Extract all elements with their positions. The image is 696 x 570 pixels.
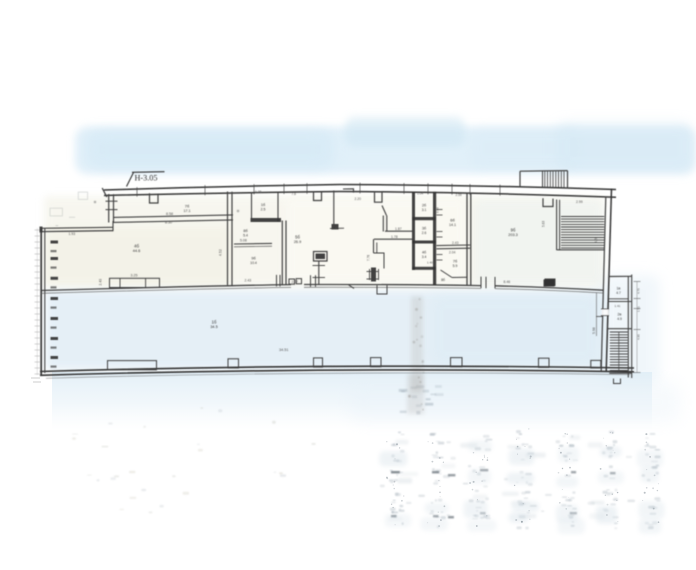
svg-text:8.46: 8.46 <box>504 280 511 284</box>
svg-text:7б: 7б <box>185 204 190 209</box>
svg-text:2в: 2в <box>618 313 622 317</box>
svg-text:203.3: 203.3 <box>508 233 517 237</box>
svg-text:44.6: 44.6 <box>133 248 141 253</box>
svg-text:2.43: 2.43 <box>245 279 252 283</box>
svg-text:1.78: 1.78 <box>391 235 398 239</box>
svg-text:9б: 9б <box>511 228 516 233</box>
svg-text:2б: 2б <box>422 204 426 208</box>
svg-text:1.40: 1.40 <box>427 261 433 265</box>
svg-text:2.20: 2.20 <box>355 197 362 201</box>
svg-text:1.93: 1.93 <box>69 232 76 236</box>
svg-text:2.59: 2.59 <box>456 193 462 197</box>
svg-text:5.98: 5.98 <box>592 327 596 334</box>
svg-text:4.76: 4.76 <box>637 288 641 294</box>
svg-text:7.8: 7.8 <box>292 192 297 196</box>
svg-text:1.41: 1.41 <box>615 304 621 308</box>
svg-text:26.9: 26.9 <box>294 240 301 244</box>
svg-text:8.50: 8.50 <box>165 221 172 225</box>
svg-text:4.7: 4.7 <box>616 291 621 295</box>
svg-text:1.26: 1.26 <box>255 190 262 194</box>
svg-text:2.04: 2.04 <box>449 250 456 254</box>
svg-text:1в: 1в <box>617 287 621 291</box>
svg-text:8.58: 8.58 <box>166 212 173 216</box>
svg-text:17.1: 17.1 <box>184 209 191 213</box>
svg-text:34.5: 34.5 <box>210 325 217 329</box>
svg-text:3.4: 3.4 <box>422 255 427 259</box>
svg-text:10.4: 10.4 <box>250 261 257 265</box>
svg-text:3б: 3б <box>422 227 426 231</box>
svg-text:4.9: 4.9 <box>617 317 622 321</box>
svg-text:2.43: 2.43 <box>99 279 103 286</box>
svg-text:4.52: 4.52 <box>219 249 223 256</box>
svg-text:8б: 8б <box>441 278 445 282</box>
svg-text:5б: 5б <box>295 235 300 240</box>
svg-text:5.9: 5.9 <box>453 264 458 268</box>
svg-text:2.07: 2.07 <box>292 280 299 284</box>
svg-text:1.51: 1.51 <box>637 306 641 312</box>
svg-text:2.6: 2.6 <box>422 231 427 235</box>
svg-text:H-3.05: H-3.05 <box>135 174 158 183</box>
svg-text:1.04: 1.04 <box>417 192 423 196</box>
svg-text:34.51: 34.51 <box>279 348 289 352</box>
svg-text:4.96: 4.96 <box>637 334 641 340</box>
svg-text:1б: 1б <box>212 320 217 325</box>
svg-text:2.99: 2.99 <box>576 200 583 204</box>
svg-text:5.63: 5.63 <box>542 221 546 227</box>
svg-text:3.25: 3.25 <box>131 274 138 278</box>
svg-text:0.88: 0.88 <box>436 207 440 213</box>
svg-text:6б: 6б <box>450 218 455 223</box>
svg-text:2.43: 2.43 <box>452 241 459 245</box>
svg-text:3.1: 3.1 <box>422 208 427 212</box>
svg-text:1.87: 1.87 <box>395 227 402 231</box>
svg-text:2.5: 2.5 <box>261 207 266 211</box>
svg-text:5.4: 5.4 <box>243 233 248 237</box>
svg-text:5.08: 5.08 <box>240 238 247 242</box>
svg-text:14.1: 14.1 <box>449 223 456 227</box>
svg-text:7.76: 7.76 <box>367 255 371 261</box>
svg-text:4б: 4б <box>422 251 426 255</box>
